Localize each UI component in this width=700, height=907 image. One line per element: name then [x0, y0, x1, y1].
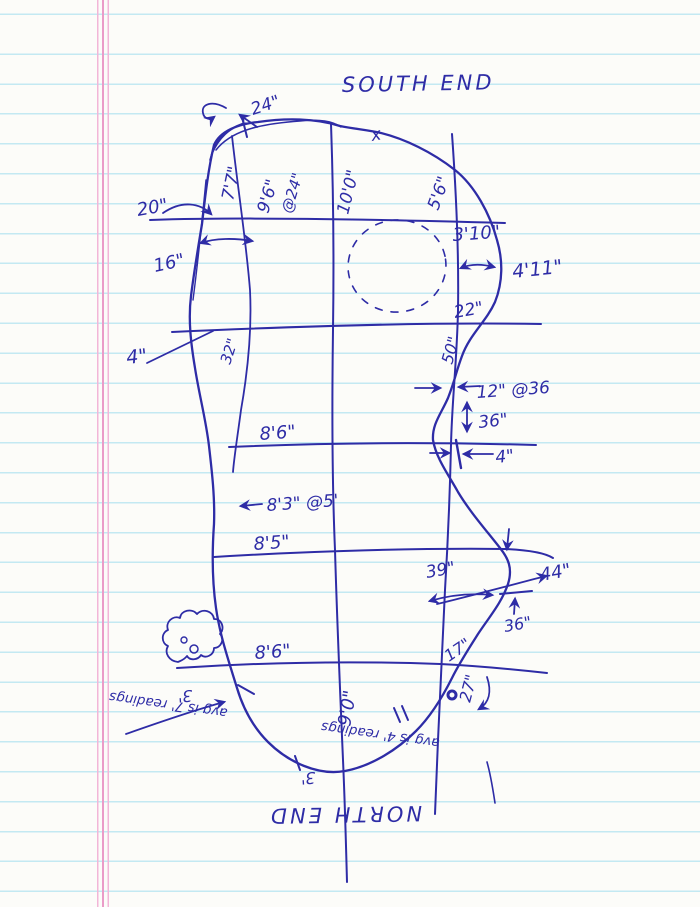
diagonal-4in-line	[147, 331, 213, 363]
label-depth-7-7: 7'7"	[218, 165, 245, 203]
tick-bottom-double-1	[394, 706, 408, 722]
label-width-3-10: 3'10"	[452, 222, 501, 246]
arrow-27	[479, 677, 489, 709]
label-south-end: SOUTH END	[342, 70, 495, 97]
label-north-end: NORTH END	[268, 801, 423, 828]
note-bottom-left: avg is 7' readings	[108, 688, 228, 720]
arrow-44	[437, 576, 546, 604]
point-marker	[448, 691, 456, 699]
label-width-8-3-at-5: 8'3" @5'	[266, 491, 339, 516]
sketch-canvas: SOUTH END NORTH END x 24" 7'7" 9'6" @24"…	[0, 0, 700, 907]
label-width-10-0: 10'0"	[333, 168, 363, 216]
cloud-doodle	[163, 611, 223, 662]
label-offset-20: 20"	[135, 195, 169, 221]
arrow-36-up	[514, 599, 515, 614]
label-width-8-6-upper: 8'6"	[259, 422, 297, 445]
arrow-8-3	[241, 504, 262, 506]
label-width-8-6-lower: 8'6"	[254, 641, 292, 664]
label-width-22: 22"	[452, 298, 484, 323]
label-width-4-11: 4'11"	[511, 256, 563, 283]
transect-2	[172, 324, 541, 332]
label-gap-4-right: 4"	[494, 446, 515, 468]
label-len-44: 44"	[538, 560, 572, 586]
bottom-right-stroke	[487, 762, 495, 803]
outline-echo-top	[216, 120, 341, 150]
label-width-8-5: 8'5"	[253, 532, 291, 555]
cloud-doodle-loop2	[181, 637, 187, 643]
arrow-4-11-span	[461, 265, 494, 268]
notebook-page: SOUTH END NORTH END x 24" 7'7" 9'6" @24"…	[0, 0, 700, 907]
label-gap-16: 16"	[152, 250, 187, 277]
cloud-doodle-loop	[190, 645, 198, 653]
tick-bottom-left	[238, 685, 254, 694]
label-len-32: 32"	[217, 336, 242, 366]
outline-echo-left	[193, 180, 206, 300]
arrow-down	[507, 529, 509, 549]
label-len-17: 17"	[441, 634, 475, 665]
label-depth-5-6: 5'6"	[424, 174, 454, 213]
dashed-area	[342, 214, 452, 319]
label-corner-24: 24"	[248, 92, 282, 120]
corner-curved-arrow	[203, 104, 226, 119]
label-offset-4-left: 4"	[125, 345, 148, 369]
label-depth-36-lower: 36"	[502, 612, 533, 636]
label-at-24: @24"	[278, 171, 307, 215]
label-drop-36: 36"	[477, 410, 508, 433]
label-narrow-12-at-36: 12" @36	[476, 378, 551, 403]
label-len-27: 27"	[456, 672, 482, 704]
label-x-mark: x	[368, 124, 383, 146]
label-depth-3-bottom: 3'	[300, 768, 316, 788]
label-len-39: 39"	[424, 558, 456, 583]
